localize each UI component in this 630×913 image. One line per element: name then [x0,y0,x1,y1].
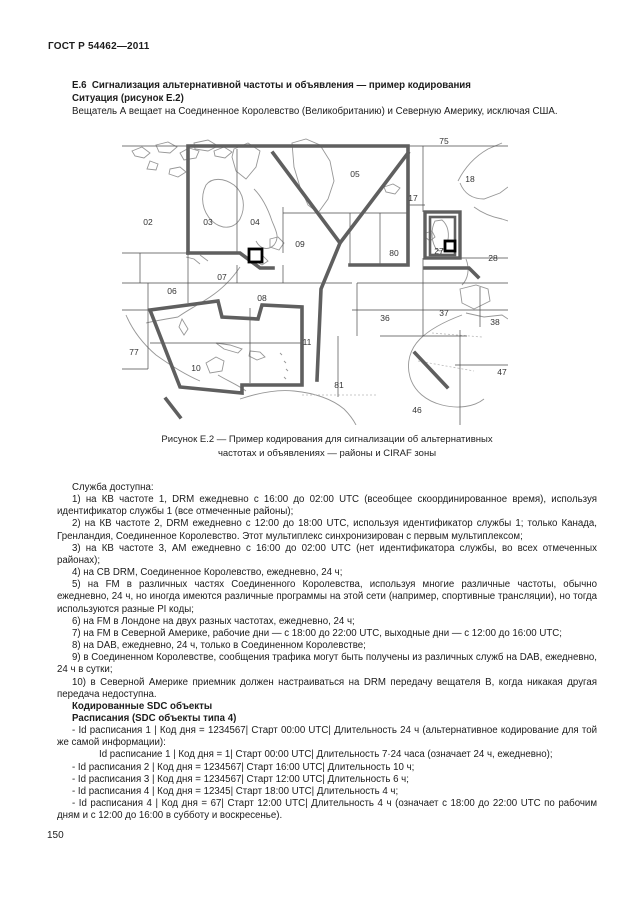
ciraf-zone-label: 08 [257,293,267,303]
paragraph: 6) на FM в Лондоне на двух разных частот… [57,616,597,628]
transmitter-marker [445,241,455,251]
ciraf-zone-label: 37 [439,308,449,318]
paragraph: Служба доступна: [57,482,597,494]
section-heading: Е.6 Сигнализация альтернативной частоты … [57,79,597,92]
ciraf-zone-label: 06 [167,286,177,296]
ciraf-zone-label: 18 [465,174,475,184]
paragraph: Кодированные SDC объекты [57,701,597,713]
ciraf-zone-label: 04 [250,217,260,227]
transmitter-marker [249,249,262,262]
paragraph: 9) в Соединенном Королевстве, сообщения … [57,652,597,676]
paragraph: - Id расписания 2 | Код дня = 1234567| С… [57,762,597,774]
figure-caption-line1: Рисунок Е.2 — Пример кодирования для сиг… [57,433,597,447]
paragraph: Id расписание 1 | Код дня = 1| Старт 00:… [57,749,597,761]
ciraf-zone-label: 10 [191,363,201,373]
ciraf-zone-label: 80 [389,248,399,258]
ciraf-zone-label: 05 [350,169,360,179]
intro-text: Вещатель А вещает на Соединенное Королев… [57,105,597,118]
ciraf-zone-label: 46 [412,405,422,415]
page-number: 150 [47,830,64,841]
body-text: Служба доступна:1) на КВ частоте 1, DRM … [57,482,597,822]
paragraph: - Id расписания 3 | Код дня = 1234567| С… [57,774,597,786]
document-page: ГОСТ Р 54462—2011 Е.6 Сигнализация альте… [0,0,630,913]
section-e6: Е.6 Сигнализация альтернативной частоты … [57,79,597,118]
paragraph: 7) на FM в Северной Америке, рабочие дни… [57,628,597,640]
ciraf-zone-label: 47 [497,367,507,377]
paragraph: 3) на КВ частоте 3, АМ ежедневно с 16:00… [57,543,597,567]
paragraph: 4) на СВ DRM, Соединенное Королевство, е… [57,567,597,579]
paragraph: - Id расписания 4 | Код дня = 67| Старт … [57,798,597,822]
ciraf-zone-label: 77 [129,347,139,357]
paragraph: Расписания (SDC объекты типа 4) [57,713,597,725]
paragraph: 1) на КВ частоте 1, DRM ежедневно с 16:0… [57,494,597,518]
ciraf-map-svg: 7505181702030409802728070608363738771011… [122,137,508,425]
paragraph: 8) на DAB, ежедневно, 24 ч, только в Сое… [57,640,597,652]
ciraf-zone-label: 36 [380,313,390,323]
ciraf-zone-label: 81 [334,380,344,390]
paragraph: 2) на КВ частоте 2, DRM ежедневно с 12:0… [57,518,597,542]
ciraf-zone-label: 28 [488,253,498,263]
paragraph: 10) в Северной Америке приемник должен н… [57,677,597,701]
country-borders-dashed [302,333,482,395]
ciraf-zone-label: 07 [217,272,227,282]
broadcast-region-outline [150,146,478,417]
ciraf-zone-label: 27 [434,246,444,256]
ciraf-zone-label: 03 [203,217,213,227]
paragraph: - Id расписания 4 | Код дня = 12345| Ста… [57,786,597,798]
ciraf-zone-label: 02 [143,217,153,227]
figure-caption-line2: частотах и объявлениях — районы и CIRAF … [57,447,597,461]
world-coastlines [126,139,508,425]
ciraf-zone-label: 38 [490,317,500,327]
paragraph: 5) на FM в различных частях Соединенного… [57,579,597,615]
standard-number-header: ГОСТ Р 54462—2011 [48,41,150,52]
ciraf-zone-label: 11 [303,337,312,347]
paragraph: - Id расписания 1 | Код дня = 1234567| С… [57,725,597,749]
figure-e2-map: 7505181702030409802728070608363738771011… [122,137,508,425]
ciraf-zone-label: 09 [295,239,305,249]
situation-heading: Ситуация (рисунок Е.2) [57,92,597,105]
ciraf-zone-label: 17 [408,193,418,203]
ciraf-zone-label: 75 [439,137,449,146]
figure-caption: Рисунок Е.2 — Пример кодирования для сиг… [57,433,597,461]
